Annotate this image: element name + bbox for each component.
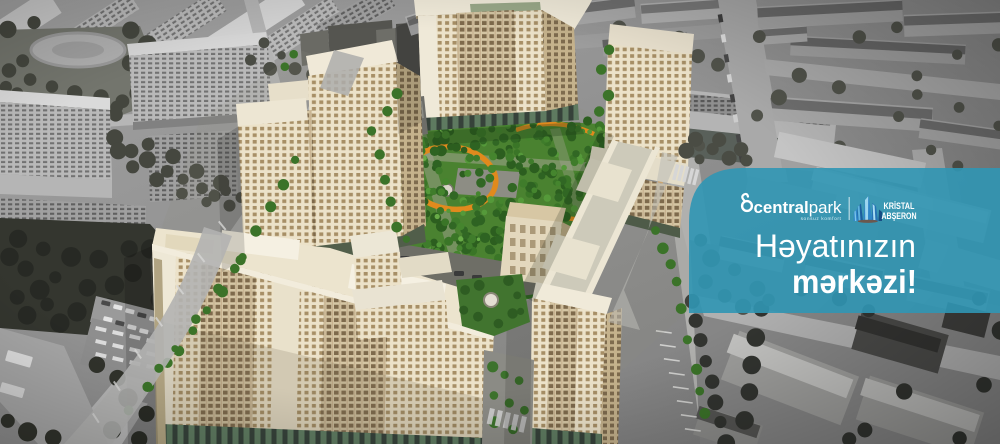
svg-text:ABŞERON: ABŞERON [882, 211, 917, 222]
svg-text:sonsuz komfort: sonsuz komfort [801, 216, 842, 222]
svg-text:Həyatınızın: Həyatınızın [755, 228, 916, 264]
svg-text:mərkəzi!: mərkəzi! [792, 264, 917, 301]
svg-text:centralpark: centralpark [754, 198, 843, 217]
